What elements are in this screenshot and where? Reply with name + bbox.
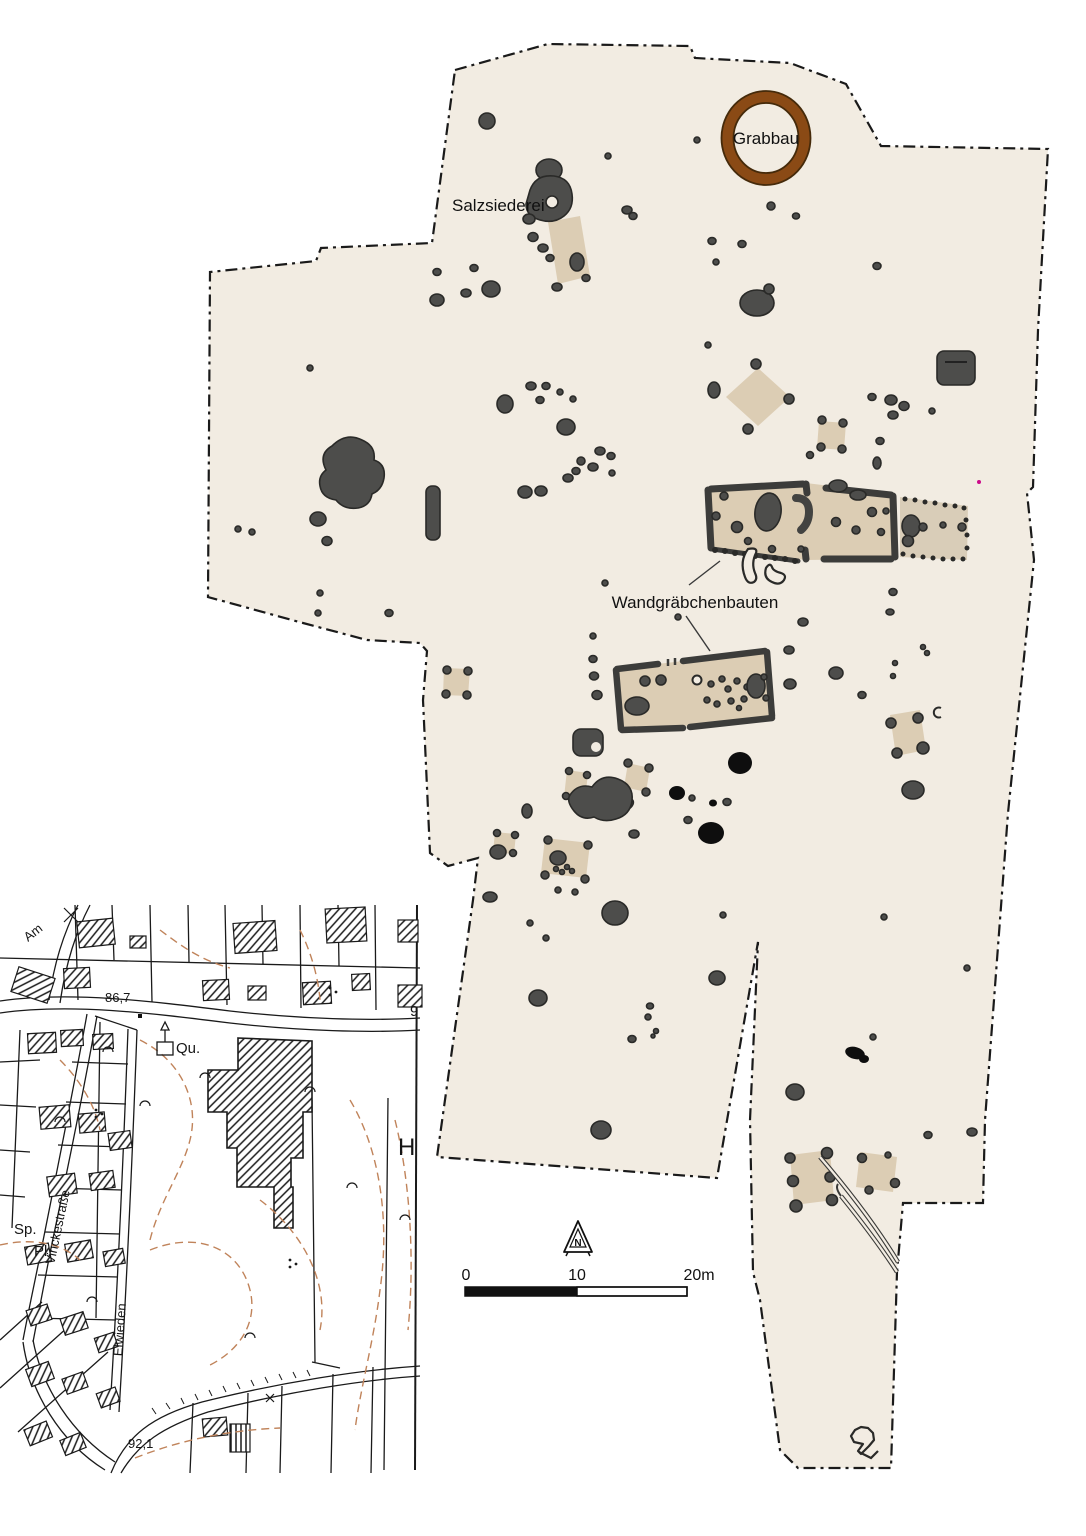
scale-tick-0: 0 bbox=[462, 1267, 471, 1284]
north-letter: N bbox=[574, 1238, 581, 1249]
elevation-92-1: 92,1 bbox=[128, 1436, 153, 1451]
scale-bar-filled bbox=[465, 1287, 577, 1296]
label-9: 9 bbox=[410, 1003, 418, 1020]
label-h: H bbox=[398, 1134, 415, 1161]
magenta-dot bbox=[977, 480, 981, 484]
scale-bar-open bbox=[577, 1287, 687, 1296]
elevation-86-7: 86,7 bbox=[105, 990, 130, 1005]
crescent-feature bbox=[743, 549, 757, 583]
scale-tick-10: 10 bbox=[568, 1267, 586, 1284]
north-arrow: N bbox=[564, 1221, 592, 1256]
wandgraebchenbauten-label: Wandgräbchenbauten bbox=[612, 593, 779, 612]
label-sp: Sp. bbox=[14, 1221, 37, 1238]
salzsiederei-label: Salzsiederei bbox=[452, 196, 545, 215]
figure-canvas: Grabbau Salzsiederei Wandgräbchenbauten … bbox=[0, 0, 1086, 1536]
inset-map: Am 86,7 Qu. 9 Sp. Pl. Vinckestraße Elwie… bbox=[0, 905, 422, 1473]
scale-bar: 0 10 20m bbox=[462, 1267, 715, 1296]
grabbau-label: Grabbau bbox=[733, 129, 799, 148]
site-plan-figure: Grabbau Salzsiederei Wandgräbchenbauten … bbox=[0, 0, 1086, 1536]
label-qu: Qu. bbox=[176, 1040, 200, 1057]
scale-tick-20m: 20m bbox=[683, 1267, 714, 1284]
